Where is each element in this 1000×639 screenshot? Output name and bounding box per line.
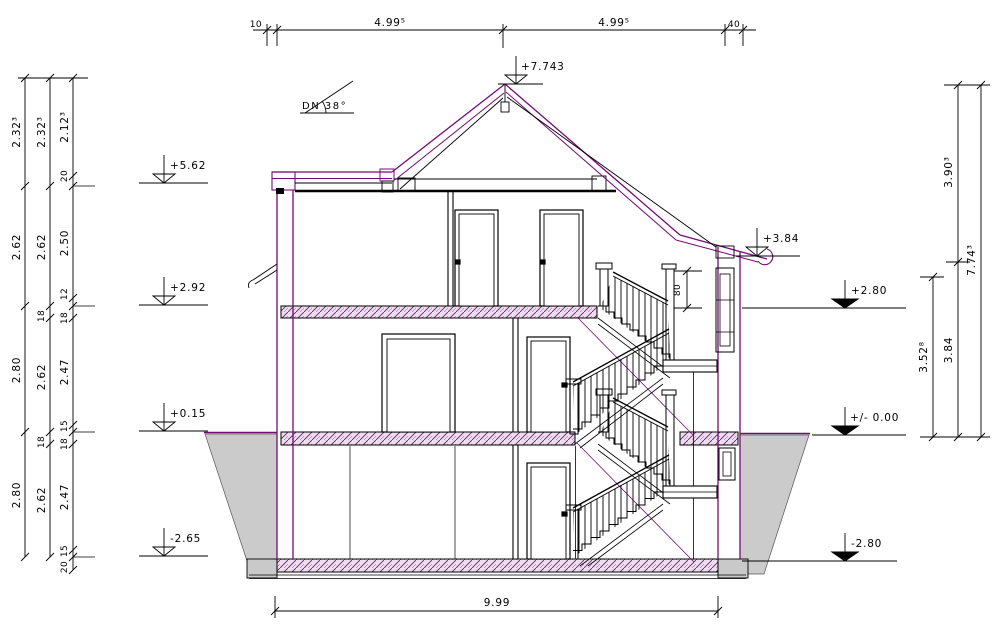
dim-l2-2: 18 xyxy=(37,310,47,322)
roof-pitch-label: DN 38° xyxy=(302,101,347,112)
level-right-0: +2.80 xyxy=(851,285,887,297)
dim-l3-3: 12 xyxy=(60,288,70,300)
level-marker-og-ceiling: +5.62 xyxy=(139,155,208,183)
roof xyxy=(249,84,773,288)
dim-l2-4: 18 xyxy=(37,436,47,448)
terrain-right xyxy=(740,435,809,574)
dim-chains-left xyxy=(18,74,95,574)
dim-l3-4: 18 xyxy=(60,312,70,324)
level-marker-og-floor: +2.92 xyxy=(139,277,208,305)
purlin-mid xyxy=(592,176,606,191)
dim-l1-2: 2.80 xyxy=(11,357,23,384)
basement-window-right xyxy=(719,448,735,480)
dim-l1-0: 2.32³ xyxy=(11,116,23,148)
level-left-3: -2.65 xyxy=(170,533,201,545)
dim-r-knee: 3.52⁸ xyxy=(918,341,930,373)
dim-bottom-total: 9.99 xyxy=(484,597,511,609)
level-marker-og-raw: +2.80 xyxy=(742,280,906,308)
dim-l3-7: 18 xyxy=(60,438,70,450)
fascia-left xyxy=(272,172,295,190)
railing-balusters xyxy=(573,459,669,557)
terrain-left xyxy=(205,434,277,576)
dim-rail-80: 80 xyxy=(673,284,683,296)
dim-l3-2: 2.50 xyxy=(59,230,71,257)
balcony-door-ground xyxy=(382,334,455,432)
landing-post-cap xyxy=(662,390,676,395)
dim-l3-6: 15 xyxy=(60,420,70,432)
dim-l2-1: 2.62 xyxy=(36,234,48,261)
dim-chains-right xyxy=(920,81,990,441)
level-marker-eg-floor: +0.15 xyxy=(139,403,208,431)
dim-l3-9: 15 xyxy=(60,545,70,557)
level-left-2: +0.15 xyxy=(170,408,206,420)
dim-l3-5: 2.47 xyxy=(59,359,71,386)
level-ridge: +7.743 xyxy=(521,61,565,73)
openings xyxy=(382,210,735,559)
level-right-1: +/- 0.00 xyxy=(850,412,899,424)
level-marker-ridge: +7.743 xyxy=(498,56,565,84)
door-upper-2 xyxy=(540,210,583,306)
door-upper-1 xyxy=(455,210,498,306)
section-svg: 10 4.99⁵ 4.99⁵ 40 xyxy=(0,0,1000,639)
dim-labels-left: 2.32³ 2.62 2.80 2.80 2.32³ 2.62 18 2.62 … xyxy=(11,111,71,573)
level-marker-eaves: +3.84 xyxy=(736,228,800,256)
dim-labels-right: 3.52⁸ 3.90³ 3.84 7.74³ xyxy=(918,156,978,373)
newel-cap xyxy=(596,263,612,269)
door-ground xyxy=(527,337,570,432)
level-marker-kg-floor: -2.65 xyxy=(139,528,208,556)
door-basement xyxy=(527,463,570,559)
slab-upper-floor xyxy=(281,306,597,318)
door-handle xyxy=(562,512,567,516)
dim-l3-0: 2.12³ xyxy=(59,111,71,143)
level-right-2: -2.80 xyxy=(851,538,882,550)
spout-left xyxy=(249,264,278,288)
floor-slabs xyxy=(249,306,746,579)
landing-post-cap xyxy=(662,264,676,269)
gutter-left xyxy=(276,188,284,194)
dim-l3-10: 20 xyxy=(60,561,70,573)
roof-slope-right-outer xyxy=(505,84,680,235)
level-marker-zero: +/- 0.00 xyxy=(812,407,906,435)
door-handle xyxy=(541,260,545,264)
dim-top-right-span: 4.99⁵ xyxy=(598,17,630,29)
level-eaves: +3.84 xyxy=(763,233,799,245)
slab-basement xyxy=(249,559,746,579)
dim-r-roof: 3.90³ xyxy=(943,156,955,188)
dim-top-wall: 40 xyxy=(728,20,740,30)
walls xyxy=(277,190,740,559)
roof-slope-left-outer xyxy=(392,84,505,172)
door-handle xyxy=(456,260,460,264)
level-left-0: +5.62 xyxy=(170,160,206,172)
dim-l3-1: 20 xyxy=(60,170,70,182)
dim-r-story: 3.84 xyxy=(943,337,955,364)
ridge-detail xyxy=(501,102,509,112)
dim-l1-3: 2.80 xyxy=(11,482,23,509)
knee-wall-window xyxy=(716,268,734,352)
level-left-1: +2.92 xyxy=(170,282,206,294)
dim-r-total: 7.74³ xyxy=(966,244,978,276)
slab-ground-floor xyxy=(281,432,738,445)
roof-pitch-annotation: DN 38° xyxy=(300,81,354,113)
building-section-drawing: 10 4.99⁵ 4.99⁵ 40 xyxy=(0,0,1000,639)
dim-l2-3: 2.62 xyxy=(36,364,48,391)
dim-chain-top xyxy=(253,24,756,48)
dim-l1-1: 2.62 xyxy=(11,234,23,261)
dim-l2-5: 2.62 xyxy=(36,487,48,514)
dim-l2-0: 2.32³ xyxy=(36,116,48,148)
dim-l3-8: 2.47 xyxy=(59,484,71,511)
dim-top-overhang: 10 xyxy=(250,20,262,30)
dim-top-left-span: 4.99⁵ xyxy=(374,17,406,29)
